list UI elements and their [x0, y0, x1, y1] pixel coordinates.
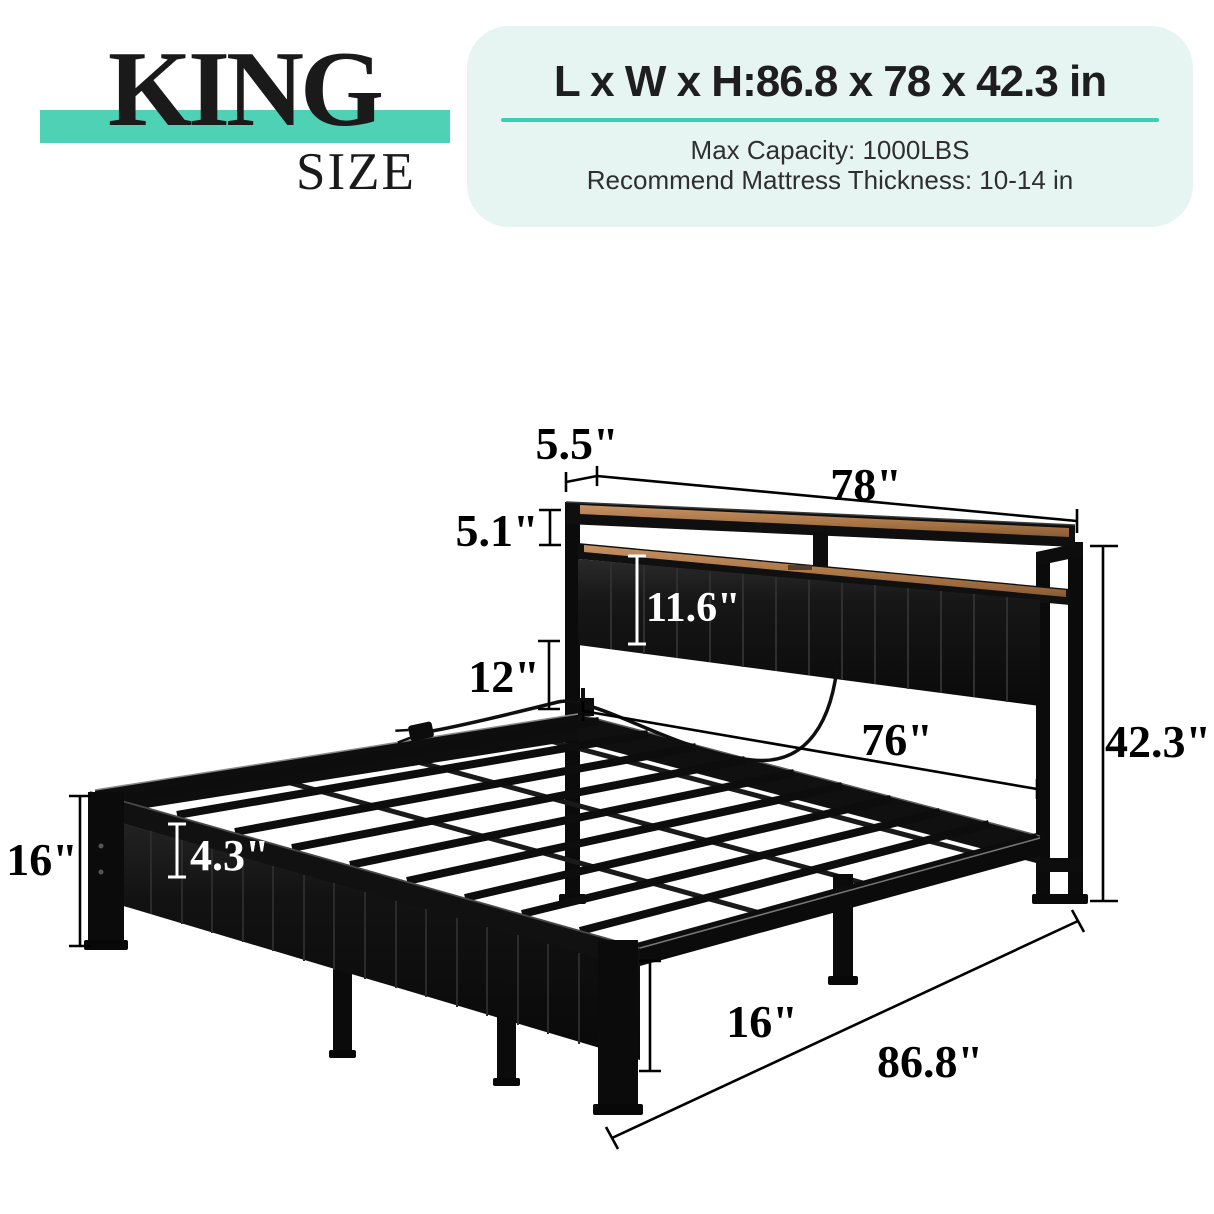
dim-overall-length: 86.8": [877, 1036, 983, 1087]
dim-headboard-width: 78": [830, 459, 902, 510]
dim-overall-height: 42.3": [1105, 716, 1211, 767]
dim-footboard-end-height: 16": [6, 834, 78, 885]
bed-frame-illustration: 5.5" 78" 5.1" 12" 76" 42.3" 16" 16" 86.8…: [0, 0, 1214, 1214]
dim-shelf-depth: 5.5": [535, 418, 618, 469]
dim-inner-width: 76": [861, 714, 933, 765]
dim-side-rail-height: 4.3": [190, 831, 269, 880]
bed-dimension-diagram: KING SIZE L x W x H:86.8 x 78 x 42.3 in …: [0, 0, 1214, 1214]
dim-shelf-tier-height: 5.1": [455, 505, 538, 556]
dim-headboard-panel-height: 11.6": [646, 585, 741, 631]
dim-leg-height: 16": [726, 996, 798, 1047]
dim-under-headboard-clearance: 12": [468, 651, 540, 702]
shelf-divider-post: [813, 532, 828, 568]
